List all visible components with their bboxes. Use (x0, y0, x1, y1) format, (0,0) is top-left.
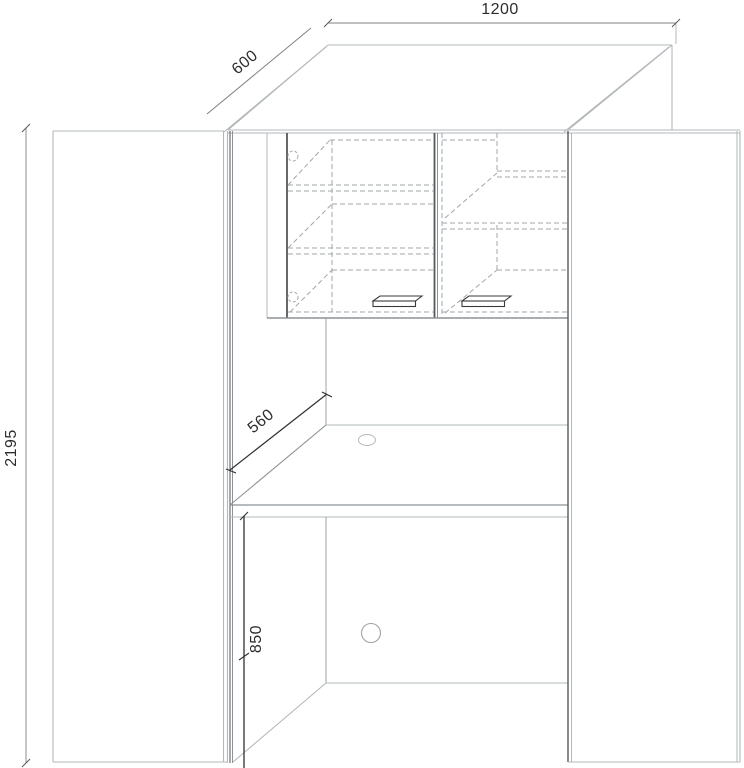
right-handle-top-face (462, 296, 511, 301)
dim-line-560 (230, 394, 327, 470)
desk-alcove (230, 318, 568, 762)
hidden-depth-diagonal-1 (445, 173, 497, 218)
hidden-depth-diagonal-2 (288, 204, 332, 248)
dimension-desk-depth: 560 (226, 392, 332, 473)
dimension-cabinet-width: 1200 (324, 1, 680, 44)
right-tall-door-panel (568, 131, 740, 762)
cabinet-desk-drawing: 1200 600 2195 560 850 (0, 0, 744, 768)
cabinet-top-slab (224, 45, 740, 133)
dim-label-desk-depth: 560 (245, 406, 278, 437)
upper-cabinet-right-door-hidden-lines (442, 133, 567, 318)
dim-label-cabinet-height: 2195 (3, 429, 20, 467)
hinge-symbol-bottom (288, 292, 298, 302)
left-handle-front-face (373, 301, 416, 307)
right-door-handle-icon (462, 296, 511, 307)
right-handle-front-face (462, 301, 505, 307)
cabinet-body-frame (230, 131, 568, 763)
hinge-symbol-top (288, 151, 298, 161)
dim-label-cabinet-width: 1200 (481, 1, 519, 18)
dimension-cabinet-depth: 600 (207, 28, 311, 114)
floor-left-depth-edge (233, 683, 326, 762)
left-door-handle-icon (373, 296, 422, 307)
dim-line-600 (207, 28, 311, 114)
desk-left-depth-edge (230, 425, 326, 505)
dim-label-desk-height: 850 (248, 625, 265, 653)
dimension-cabinet-height: 2195 (3, 124, 30, 767)
dimension-desk-height: 850 (239, 512, 265, 768)
technical-drawing-page: 1200 600 2195 560 850 (0, 0, 744, 768)
hidden-depth-diagonal-3 (290, 270, 332, 312)
back-panel-cable-grommet-icon (362, 624, 381, 643)
desk-cable-grommet-icon (359, 435, 376, 446)
upper-cabinet-left-door-hidden-lines (288, 140, 434, 312)
top-right-depth-edge-inner (564, 47, 669, 132)
hidden-depth-diagonal-1 (288, 140, 330, 185)
left-handle-top-face (373, 296, 422, 301)
left-tall-door-panel (53, 131, 228, 763)
